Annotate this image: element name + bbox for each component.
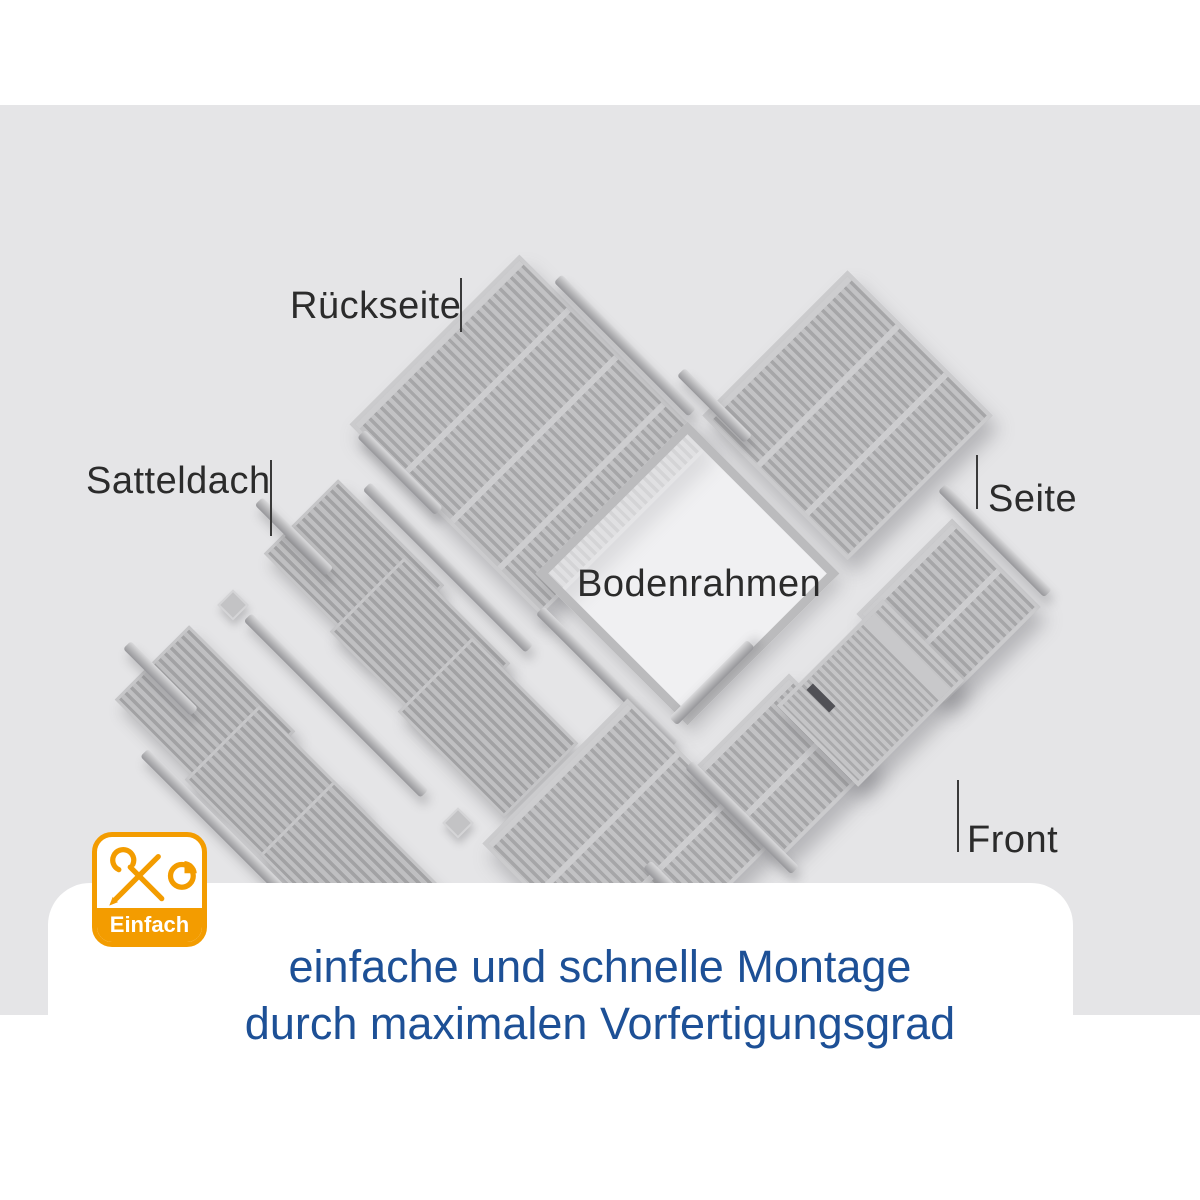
label-tick-front [957,780,959,852]
label-rueckseite: Rückseite [290,285,461,328]
label-tick-seite-right [976,455,978,509]
einfach-badge-label: Einfach [97,908,202,942]
label-seite-right: Seite [988,478,1077,521]
caption-line-2: durch maximalen Vorfertigungsgrad [0,995,1200,1052]
label-tick-satteldach [270,460,272,536]
caption-text: einfache und schnelle Montage durch maxi… [0,938,1200,1052]
label-bodenrahmen: Bodenrahmen [577,563,821,606]
label-tick-rueckseite [460,278,462,332]
label-front: Front [967,819,1058,862]
door-handle [807,683,836,712]
corner-cap-piece [442,807,473,838]
product-feature-image: Rückseite Satteldach Bodenrahmen Seite F… [0,0,1200,1200]
einfach-badge: Einfach [92,832,207,947]
wrench-pencil-pie-chart-icon [97,839,202,911]
corner-cap-piece [217,589,248,620]
label-satteldach: Satteldach [86,460,271,503]
